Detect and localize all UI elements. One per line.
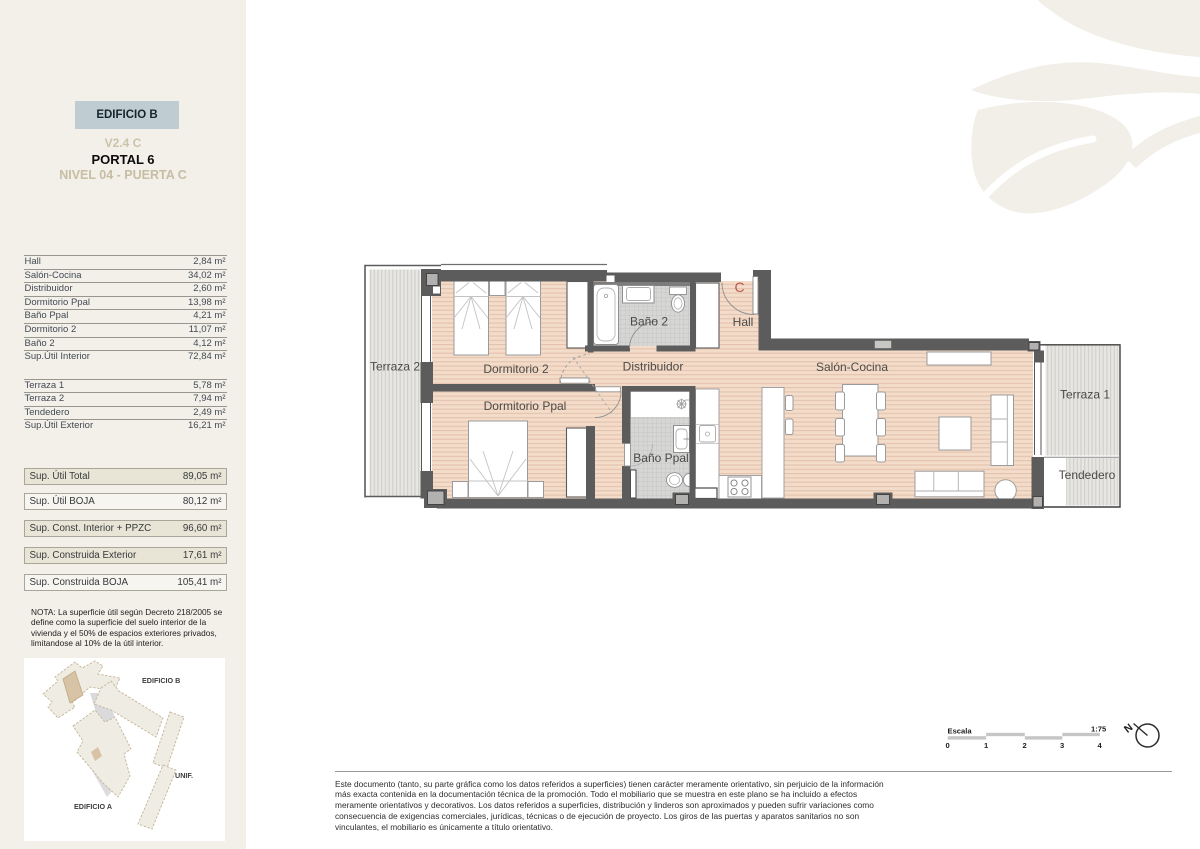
svg-text:Terraza 1: Terraza 1 [1060, 388, 1110, 402]
svg-text:Distribuidor: Distribuidor [623, 360, 684, 374]
svg-text:2: 2 [1023, 741, 1027, 750]
svg-text:Dormitorio 2: Dormitorio 2 [483, 362, 549, 376]
svg-text:Escala: Escala [948, 727, 973, 736]
svg-text:Dormitorio Ppal: Dormitorio Ppal [484, 399, 567, 413]
svg-text:3: 3 [1060, 741, 1064, 750]
svg-text:Hall: Hall [733, 315, 754, 329]
svg-text:4: 4 [1098, 741, 1103, 750]
svg-text:Baño 2: Baño 2 [630, 315, 668, 329]
svg-text:0: 0 [946, 741, 950, 750]
svg-text:EDIFICIO A: EDIFICIO A [74, 802, 112, 811]
svg-text:1:75: 1:75 [1091, 725, 1107, 734]
svg-text:UNIF.: UNIF. [175, 771, 193, 780]
svg-text:N: N [1122, 721, 1135, 735]
svg-text:Tendedero: Tendedero [1059, 468, 1116, 482]
svg-text:Salón-Cocina: Salón-Cocina [816, 360, 888, 374]
svg-text:Terraza 2: Terraza 2 [370, 360, 420, 374]
svg-text:C: C [734, 279, 744, 295]
svg-text:Baño Ppal: Baño Ppal [633, 451, 688, 465]
svg-text:1: 1 [984, 741, 989, 750]
svg-text:EDIFICIO B: EDIFICIO B [142, 676, 180, 685]
